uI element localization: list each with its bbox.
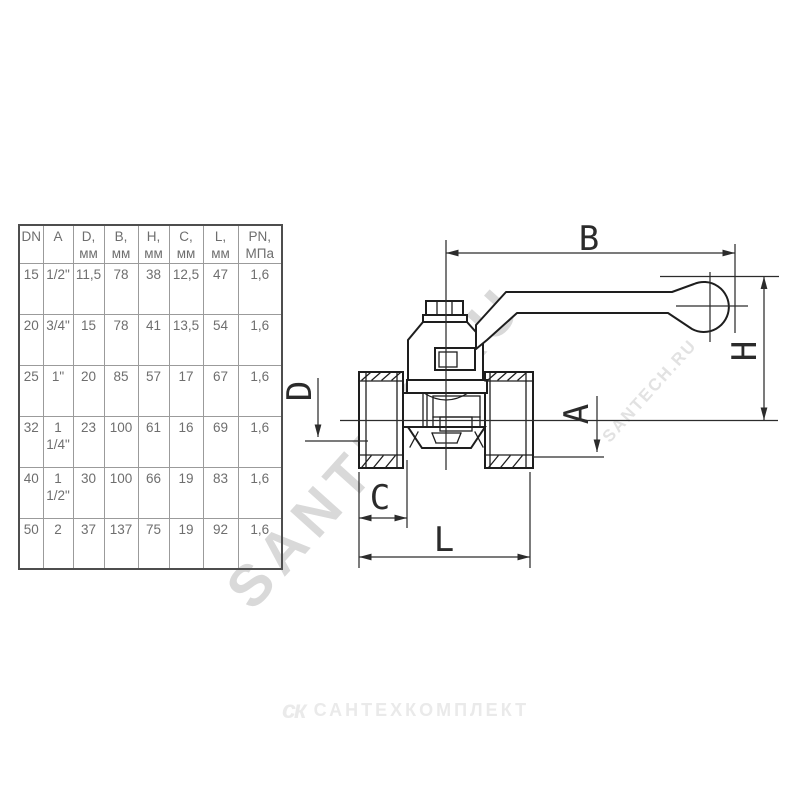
page: SANTEH.RU SANTECH.RU ск САНТЕХКОМПЛЕКТ D… (0, 0, 800, 800)
dim-label-d: D (280, 381, 320, 401)
dim-label-a: A (557, 404, 597, 424)
valve-handle (476, 282, 729, 349)
dim-label-c: C (370, 478, 390, 518)
valve-technical-drawing: B C L D A H (0, 0, 800, 800)
dim-label-h: H (725, 341, 765, 361)
dim-label-l: L (434, 520, 454, 560)
dim-label-b: B (579, 219, 599, 259)
